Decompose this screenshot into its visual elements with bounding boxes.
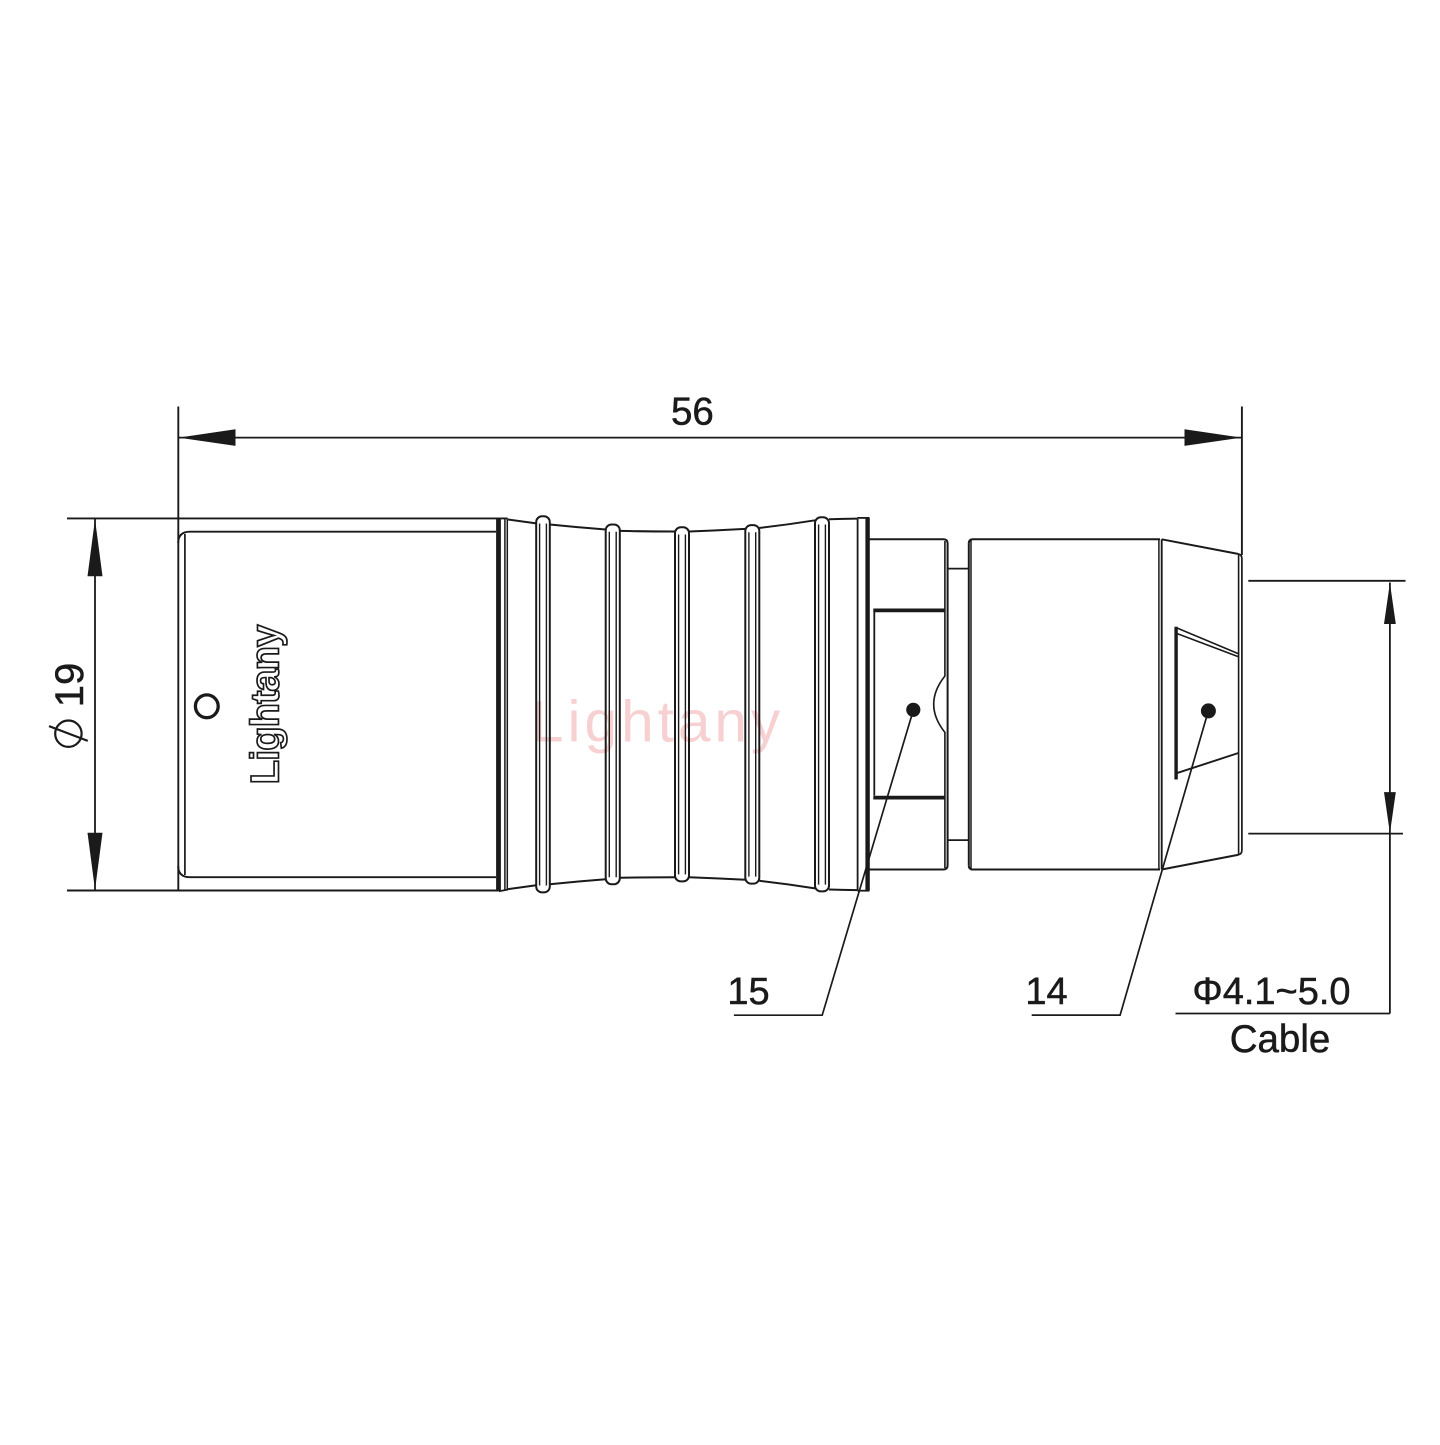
svg-text:19: 19 bbox=[48, 663, 92, 708]
svg-text:14: 14 bbox=[1025, 971, 1067, 1013]
svg-text:Φ4.1~5.0: Φ4.1~5.0 bbox=[1192, 971, 1350, 1013]
svg-text:56: 56 bbox=[671, 391, 714, 434]
svg-text:15: 15 bbox=[727, 971, 769, 1013]
svg-text:Lightany: Lightany bbox=[244, 624, 288, 784]
svg-text:Cable: Cable bbox=[1230, 1018, 1331, 1061]
